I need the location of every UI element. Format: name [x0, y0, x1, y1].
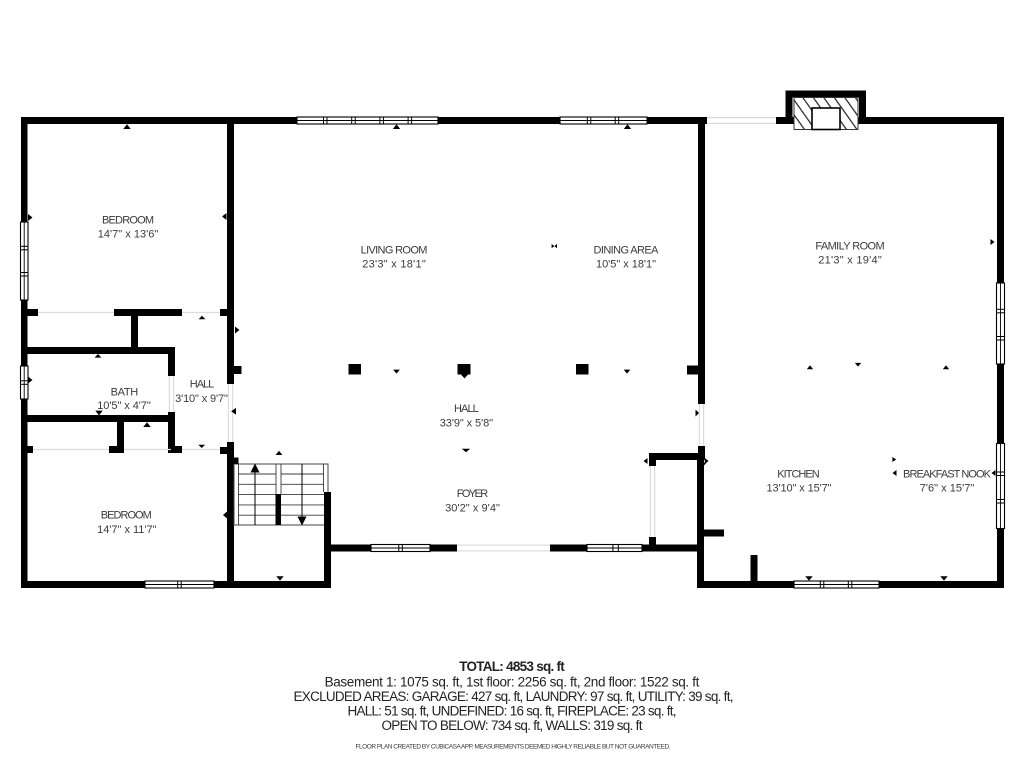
svg-text:FOYER: FOYER [457, 488, 488, 500]
svg-text:13'10" x 15'7": 13'10" x 15'7" [766, 482, 831, 494]
svg-text:14'7" x 11'7": 14'7" x 11'7" [97, 524, 156, 536]
svg-text:DINING AREA: DINING AREA [594, 245, 660, 257]
svg-text:HALL: HALL [190, 379, 215, 391]
svg-text:FAMILY ROOM: FAMILY ROOM [815, 241, 884, 253]
svg-text:10'5" x 4'7": 10'5" x 4'7" [97, 400, 151, 412]
svg-text:21'3" x 19'4": 21'3" x 19'4" [818, 255, 882, 267]
svg-text:LIVING ROOM: LIVING ROOM [361, 245, 428, 257]
svg-text:EXCLUDED AREAS: GARAGE: 427 sq: EXCLUDED AREAS: GARAGE: 427 sq. ft, LAUN… [294, 689, 734, 704]
svg-text:30'2" x 9'4": 30'2" x 9'4" [445, 503, 500, 515]
svg-text:OPEN TO BELOW: 734 sq. ft, WAL: OPEN TO BELOW: 734 sq. ft, WALLS: 319 sq… [382, 718, 643, 733]
svg-text:Basement 1: 1075 sq. ft, 1st f: Basement 1: 1075 sq. ft, 1st floor: 2256… [325, 674, 700, 689]
svg-text:FLOOR PLAN CREATED BY CUBICASA: FLOOR PLAN CREATED BY CUBICASA APP. MEAS… [356, 744, 671, 751]
svg-text:HALL: 51 sq. ft, UNDEFINED: 16: HALL: 51 sq. ft, UNDEFINED: 16 sq. ft, F… [348, 703, 677, 718]
svg-text:23'3" x 18'1": 23'3" x 18'1" [362, 258, 426, 270]
svg-text:BATH: BATH [111, 387, 139, 399]
svg-text:10'5" x 18'1": 10'5" x 18'1" [596, 258, 656, 270]
svg-text:BREAKFAST NOOK: BREAKFAST NOOK [903, 468, 992, 480]
svg-text:BEDROOM: BEDROOM [102, 215, 154, 227]
svg-text:HALL: HALL [454, 403, 479, 415]
svg-text:7'6" x 15'7": 7'6" x 15'7" [920, 482, 975, 494]
svg-text:14'7" x 13'6": 14'7" x 13'6" [98, 228, 159, 240]
svg-text:33'9" x 5'8": 33'9" x 5'8" [440, 418, 493, 430]
svg-text:KITCHEN: KITCHEN [777, 468, 819, 480]
svg-text:TOTAL: 4853 sq. ft: TOTAL: 4853 sq. ft [459, 659, 565, 674]
svg-text:BEDROOM: BEDROOM [101, 510, 152, 522]
svg-text:3'10" x 9'7": 3'10" x 9'7" [175, 393, 228, 405]
